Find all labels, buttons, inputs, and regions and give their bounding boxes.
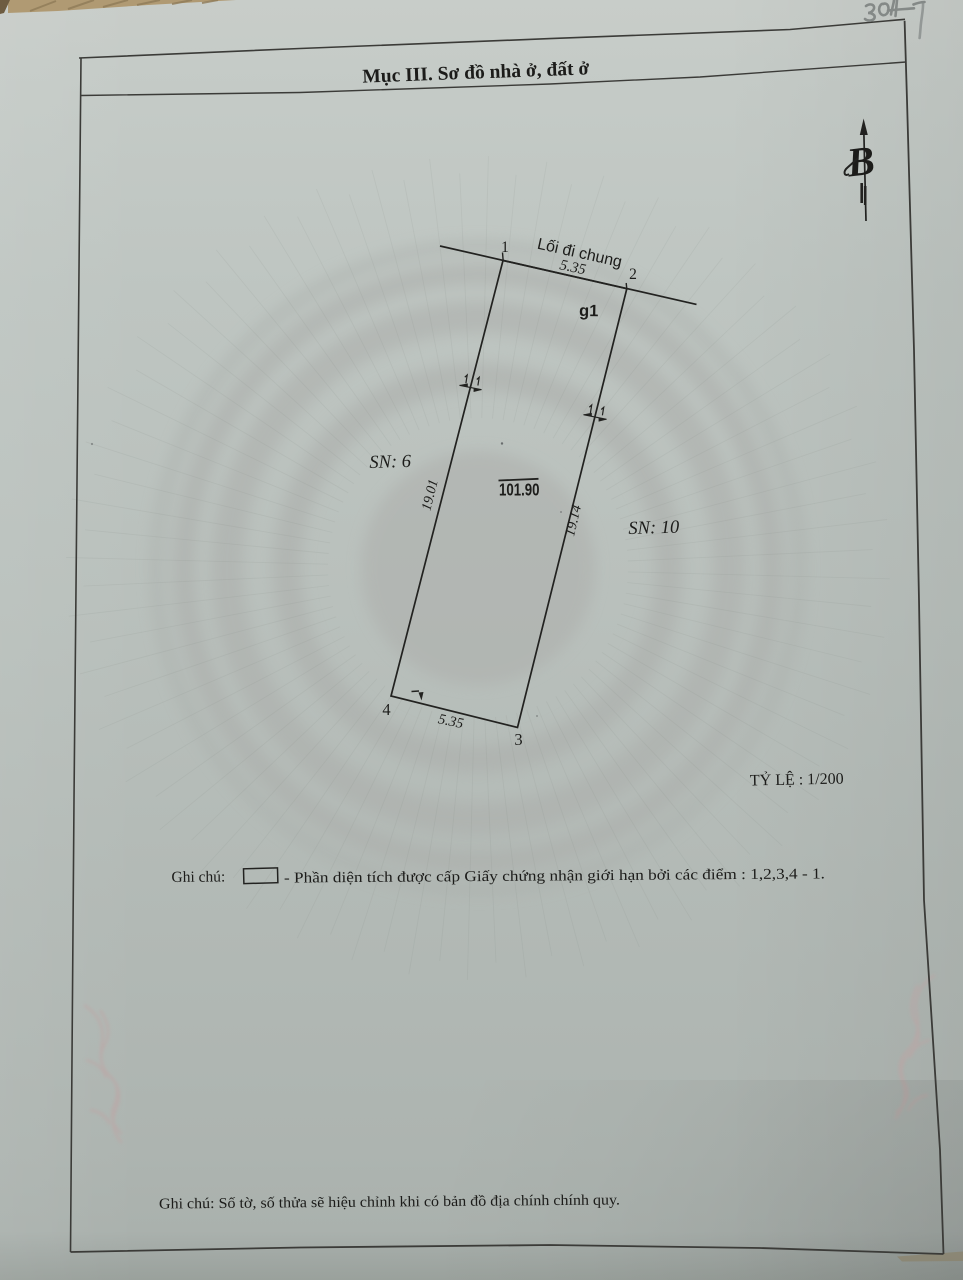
svg-text:2: 2 [629,266,637,283]
svg-text:3: 3 [514,730,522,749]
svg-text:B: B [843,137,877,186]
svg-text:SN: 6: SN: 6 [369,452,412,473]
svg-text:g1: g1 [579,302,599,320]
svg-text:4: 4 [382,700,390,719]
svg-text:TỶ LỆ : 1/200: TỶ LỆ : 1/200 [750,769,844,790]
svg-text:101.90: 101.90 [499,480,540,500]
svg-text:SN: 10: SN: 10 [628,518,680,539]
svg-text:Ghi chú:: Ghi chú: [171,868,225,886]
